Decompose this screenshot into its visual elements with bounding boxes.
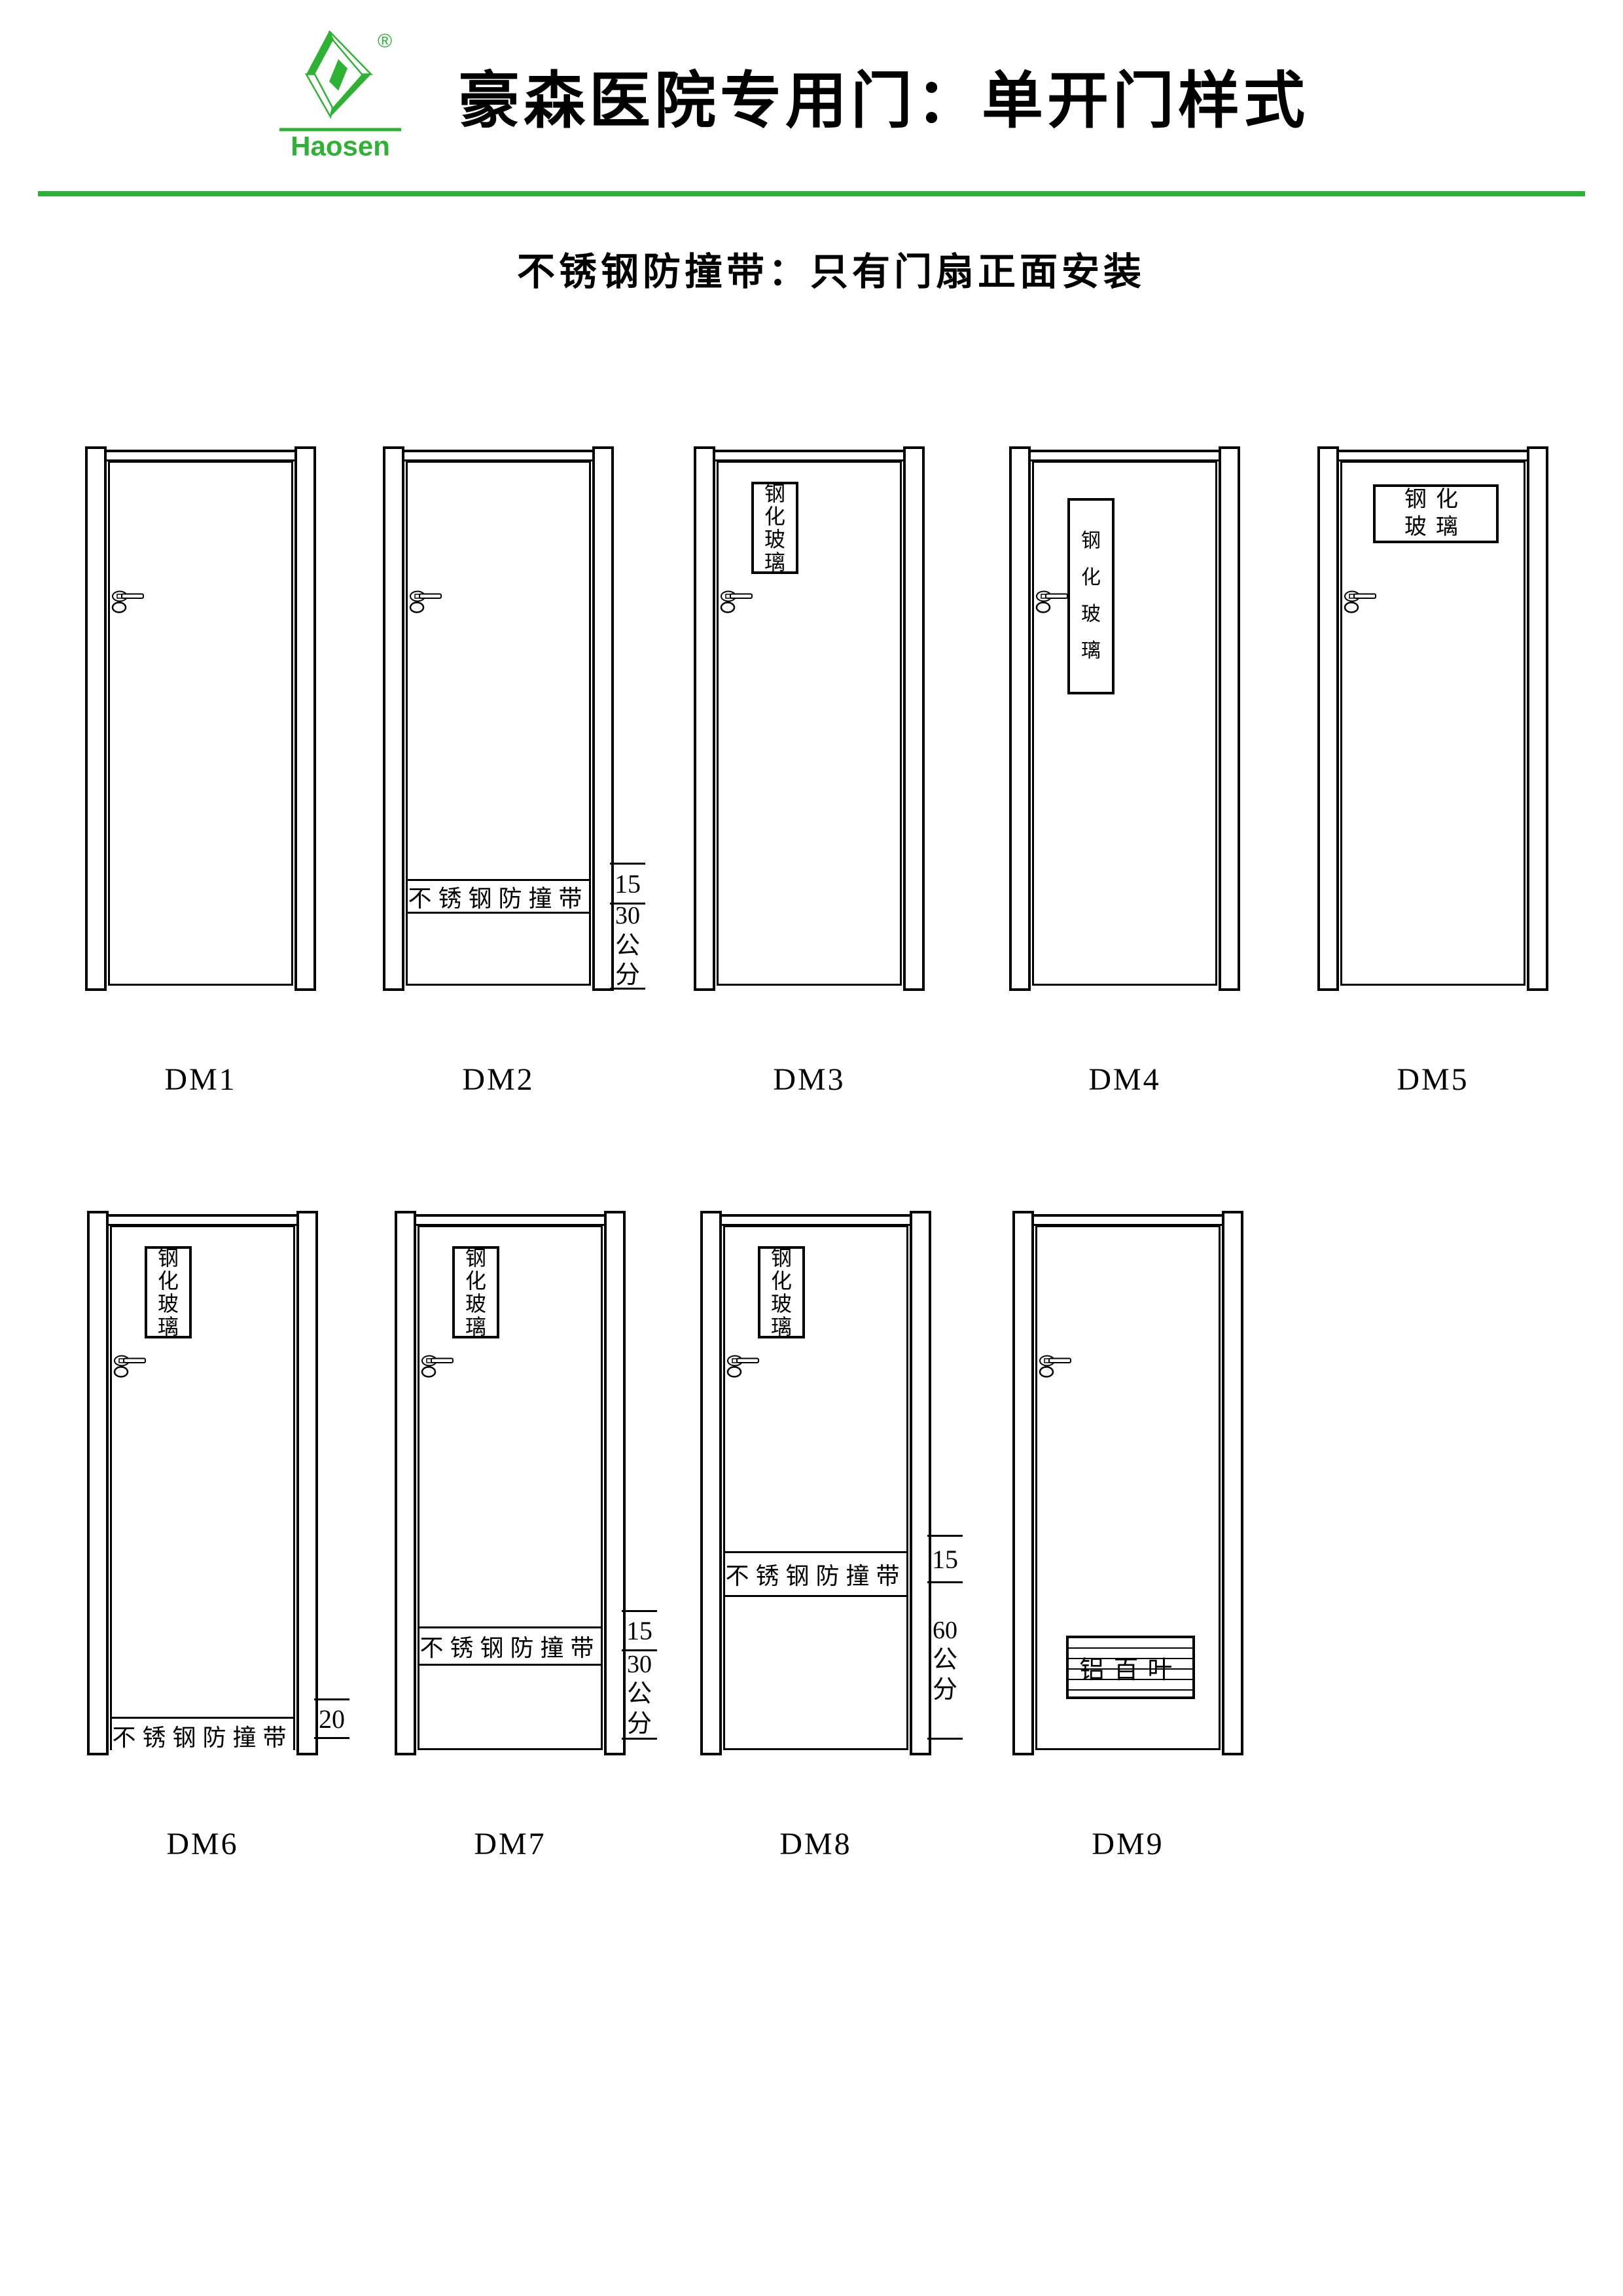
glass-window: 钢化玻璃 (1373, 484, 1499, 543)
glass-window: 钢化玻璃 (145, 1246, 192, 1338)
door-handle-icon (113, 1354, 152, 1379)
door-leaf: 铝百叶 (1035, 1225, 1221, 1750)
door-leaf: 钢化玻璃 (1340, 461, 1525, 986)
door-frame-header (715, 450, 903, 461)
door-frame-left-post (383, 446, 404, 991)
door-frame-header (722, 1214, 910, 1226)
impact-strip: 不锈钢防撞带 (408, 879, 589, 914)
door-figure-dm4: 钢化玻璃 DM4 (1009, 446, 1240, 991)
glass-window-label: 钢化玻璃 (770, 1247, 794, 1338)
door-frame-header (416, 1214, 604, 1226)
door-frame-header (1031, 450, 1219, 461)
dimension-value: 15 (927, 1537, 963, 1581)
door-leaf: 不锈钢防撞带 (406, 461, 591, 986)
haosen-logo: ® Haosen (278, 25, 402, 162)
door-frame-left-post (395, 1211, 416, 1755)
door-label: DM3 (694, 1062, 925, 1098)
glass-window-label: 钢化玻璃 (464, 1247, 488, 1338)
door-handle-icon (720, 590, 759, 615)
dimension-annotation: 15 30公分 (622, 1610, 657, 1740)
dimension-text: 60公分 (930, 1616, 960, 1706)
logo-diamond-face (306, 75, 332, 117)
dimension-text: 30公分 (624, 1650, 654, 1740)
dimension-tick (927, 1738, 963, 1740)
page-subtitle: 不锈钢防撞带：只有门扇正面安装 (340, 241, 1322, 296)
door-figure-dm1: DM1 (85, 446, 316, 991)
brand-name: Haosen (291, 131, 390, 162)
door-figure-dm7: 钢化玻璃 不锈钢防撞带 15 30公分 DM7 (395, 1211, 626, 1755)
dimension-annotation: 15 60公分 (927, 1535, 963, 1740)
dimension-value: 15 (622, 1612, 657, 1649)
page-title: 豪森医院专用门：单开门样式 (406, 51, 1361, 140)
dimension-value: 60公分 (927, 1583, 963, 1738)
catalog-page: ® Haosen 豪森医院专用门：单开门样式 不锈钢防撞带：只有门扇正面安装 D… (0, 0, 1623, 2296)
door-label: DM6 (87, 1826, 318, 1862)
door-frame-header (404, 450, 592, 461)
door-frame-left-post (700, 1211, 722, 1755)
door-frame-right-post (296, 1211, 318, 1755)
logo-diamond-face (306, 31, 333, 75)
glass-window-label: 钢化玻璃 (763, 482, 787, 574)
dimension-value: 30公分 (622, 1651, 657, 1738)
impact-strip: 不锈钢防撞带 (725, 1551, 906, 1597)
door-figure-dm6: 钢化玻璃 不锈钢防撞带 20 DM6 (87, 1211, 318, 1755)
door-label: DM1 (85, 1062, 316, 1098)
glass-window-label: 钢化玻璃 (1080, 523, 1103, 670)
door-handle-icon (1039, 1354, 1078, 1379)
door-frame-left-post (87, 1211, 109, 1755)
door-handle-icon (409, 590, 448, 615)
logo-core (329, 60, 348, 91)
door-frame-left-post (1317, 446, 1339, 991)
door-frame-header (107, 450, 294, 461)
dimension-value: 30公分 (610, 905, 645, 988)
door-label: DM7 (395, 1826, 626, 1862)
door-handle-icon (1035, 590, 1075, 615)
registered-mark: ® (378, 31, 392, 52)
door-frame-left-post (694, 446, 715, 991)
door-frame-right-post (1219, 446, 1240, 991)
door-frame-left-post (1009, 446, 1031, 991)
dimension-value: 15 (610, 865, 645, 903)
door-leaf (108, 461, 293, 986)
door-handle-icon (726, 1354, 766, 1379)
glass-window: 钢化玻璃 (758, 1246, 805, 1338)
dimension-value: 20 (314, 1700, 349, 1737)
door-frame-right-post (903, 446, 925, 991)
door-leaf: 钢化玻璃 (717, 461, 902, 986)
glass-window-label: 钢化玻璃 (1401, 486, 1470, 541)
door-frame-header (1339, 450, 1527, 461)
dimension-text: 30公分 (613, 901, 643, 991)
door-frame-right-post (294, 446, 316, 991)
door-frame-right-post (1222, 1211, 1243, 1755)
door-figure-dm8: 钢化玻璃 不锈钢防撞带 15 60公分 DM8 (700, 1211, 931, 1755)
door-frame-left-post (1012, 1211, 1034, 1755)
glass-window: 钢化玻璃 (452, 1246, 499, 1338)
impact-strip: 不锈钢防撞带 (419, 1626, 601, 1666)
door-leaf: 钢化玻璃 不锈钢防撞带 (110, 1225, 295, 1750)
door-label: DM4 (1009, 1062, 1240, 1098)
door-handle-icon (1344, 590, 1383, 615)
door-figure-dm9: 铝百叶 DM9 (1012, 1211, 1243, 1755)
door-handle-icon (111, 590, 151, 615)
louver-vent: 铝百叶 (1066, 1636, 1195, 1699)
door-figure-dm3: 钢化玻璃 DM3 (694, 446, 925, 991)
door-frame-header (1034, 1214, 1222, 1226)
door-label: DM5 (1317, 1062, 1548, 1098)
header-divider (38, 191, 1585, 196)
door-handle-icon (421, 1354, 460, 1379)
door-leaf: 钢化玻璃 (1032, 461, 1217, 986)
dimension-annotation: 15 30公分 (610, 863, 645, 990)
door-label: DM9 (1012, 1826, 1243, 1862)
door-figure-dm5: 钢化玻璃 DM5 (1317, 446, 1548, 991)
door-frame-header (109, 1214, 296, 1226)
dimension-annotation: 20 (314, 1698, 349, 1739)
dimension-tick (314, 1737, 349, 1739)
door-label: DM8 (700, 1826, 931, 1862)
louver-label: 铝百叶 (1079, 1649, 1181, 1685)
door-label: DM2 (383, 1062, 614, 1098)
door-frame-right-post (1527, 446, 1548, 991)
glass-window: 钢化玻璃 (751, 482, 798, 574)
door-frame-left-post (85, 446, 107, 991)
door-figure-dm2: 不锈钢防撞带 15 30公分 DM2 (383, 446, 614, 991)
impact-strip: 不锈钢防撞带 (112, 1717, 293, 1752)
door-leaf: 钢化玻璃 不锈钢防撞带 (723, 1225, 908, 1750)
glass-window-label: 钢化玻璃 (156, 1247, 181, 1338)
door-leaf: 钢化玻璃 不锈钢防撞带 (418, 1225, 603, 1750)
